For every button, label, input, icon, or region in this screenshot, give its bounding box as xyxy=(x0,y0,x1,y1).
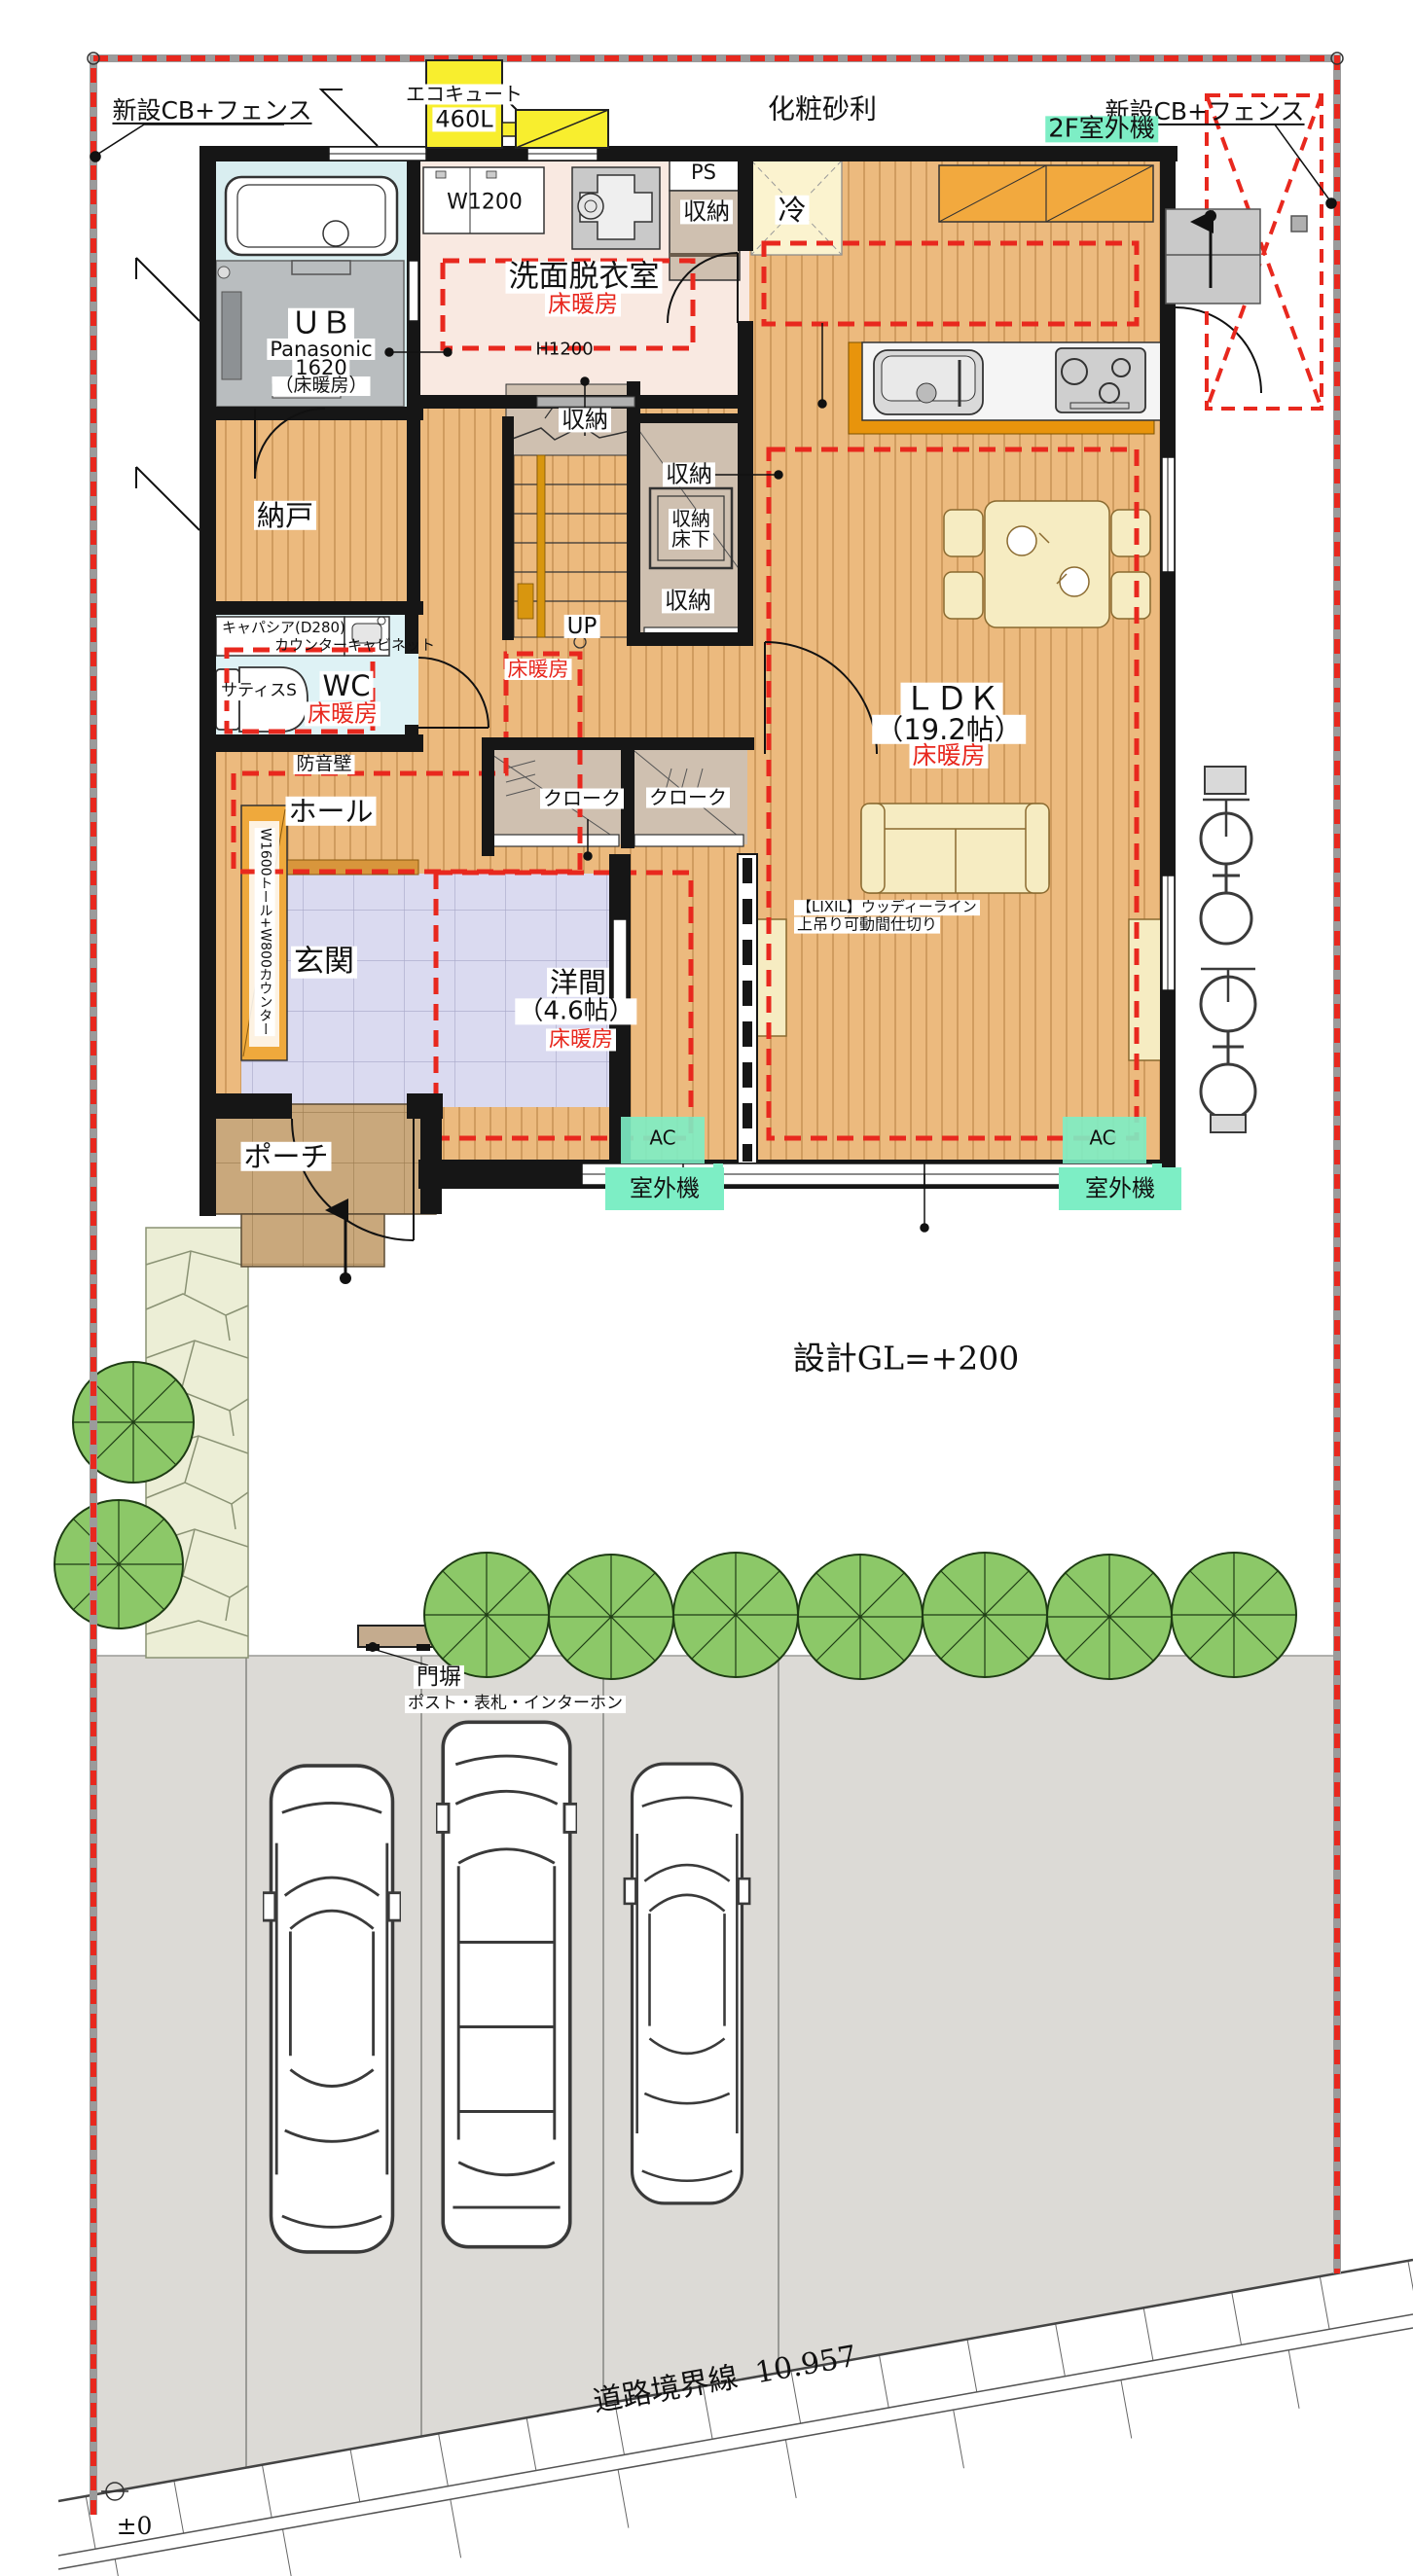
back-steps xyxy=(1166,209,1260,304)
stair-side-storage xyxy=(634,420,747,639)
toilet xyxy=(216,667,308,732)
stove xyxy=(1056,348,1145,412)
movable-partition xyxy=(738,854,757,1163)
washroom xyxy=(418,154,749,409)
half-wall-h1200 xyxy=(537,397,634,407)
site-plan-drawing xyxy=(0,0,1413,2576)
drain-box xyxy=(1291,216,1307,232)
car-2 xyxy=(436,1722,577,2246)
car-1 xyxy=(263,1766,401,2252)
tree xyxy=(798,1555,923,1679)
car-3 xyxy=(625,1764,749,2203)
wash-basin xyxy=(572,167,660,249)
tree xyxy=(424,1553,549,1677)
wc-room xyxy=(204,615,418,737)
tree xyxy=(923,1553,1047,1677)
parked-cars xyxy=(263,1722,749,2252)
tree xyxy=(1047,1555,1172,1679)
ecocute-unit xyxy=(426,60,608,148)
bicycle-2 xyxy=(1201,969,1255,1132)
tree xyxy=(54,1500,183,1628)
bicycles xyxy=(1201,767,1255,1132)
bathroom-ub xyxy=(202,154,418,413)
bath-counter xyxy=(292,261,350,274)
tree xyxy=(549,1555,673,1679)
washroom-storage xyxy=(670,191,740,280)
side-board-2 xyxy=(1129,919,1164,1060)
cloak-closets xyxy=(485,747,747,846)
tree xyxy=(673,1553,798,1677)
bicycle-1 xyxy=(1201,767,1251,944)
fridge-nook xyxy=(751,161,842,255)
stair-rail xyxy=(537,455,545,637)
stairs xyxy=(506,384,638,648)
sofa xyxy=(861,804,1049,893)
tree xyxy=(1172,1553,1296,1677)
floor-plan-page: 新設CB+フェンスエコキュート460L化粧砂利新設CB+フェンス2F室外機ＵＢP… xyxy=(0,0,1413,2576)
kitchen-sink xyxy=(874,350,983,414)
